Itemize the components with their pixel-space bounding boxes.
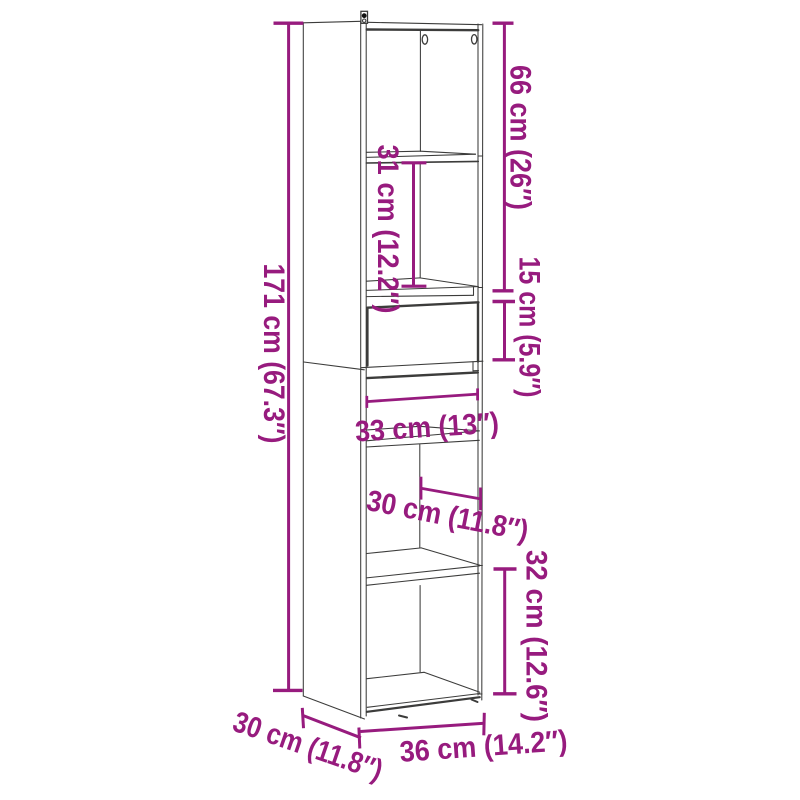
svg-text:32 cm (12.6″): 32 cm (12.6″)	[520, 550, 553, 722]
svg-text:171 cm (67.3″): 171 cm (67.3″)	[257, 264, 290, 444]
svg-text:66 cm (26″): 66 cm (26″)	[504, 65, 537, 210]
svg-text:15 cm (5.9″): 15 cm (5.9″)	[513, 257, 546, 398]
svg-text:31 cm (12.2″): 31 cm (12.2″)	[371, 145, 404, 314]
svg-text:36 cm (14.2″): 36 cm (14.2″)	[399, 724, 569, 769]
